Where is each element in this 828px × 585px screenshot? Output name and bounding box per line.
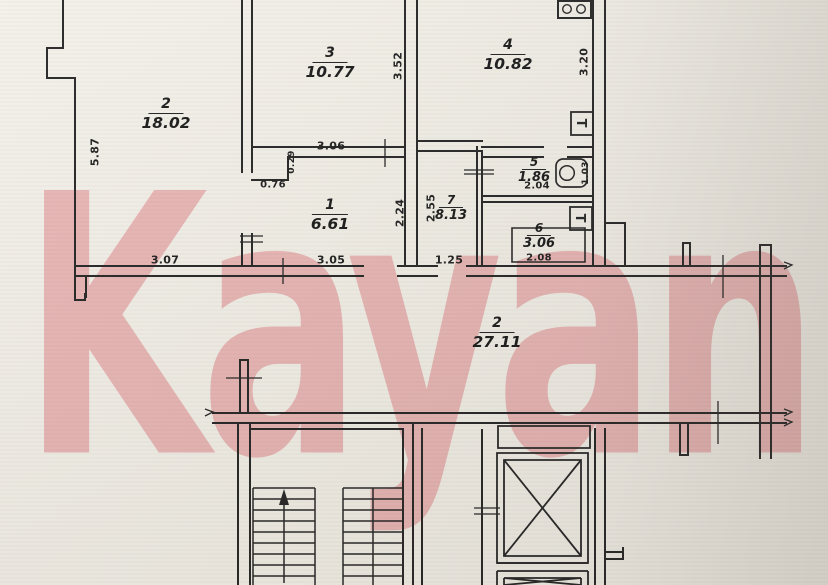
elevators: [497, 426, 590, 585]
dim-label: 3.07: [151, 254, 179, 267]
room-label-3: 3 10.77: [305, 44, 354, 81]
room-area: 10.77: [305, 65, 354, 81]
room-label-1: 1 6.61: [311, 196, 349, 233]
room-area: 8.13: [435, 209, 467, 222]
room-number: 1: [312, 198, 348, 215]
walls: [47, 0, 786, 585]
room-label-4: 4 10.82: [483, 36, 532, 73]
room-label-5: 5 1.86: [518, 153, 550, 184]
room-area: 3.06: [523, 237, 555, 250]
towel-dryer-letter: Т: [572, 214, 587, 223]
elevator-lobby-wall: [595, 429, 623, 585]
wall-room4-bottom: [417, 141, 482, 151]
stairs: [253, 488, 403, 585]
dim-label: 0.29: [287, 150, 297, 173]
room-label-6: 6 3.06: [523, 219, 555, 250]
dim-label: 3.05: [317, 254, 345, 267]
up-arrow-icon: [279, 489, 289, 505]
dim-label: 2.55: [425, 194, 438, 222]
room-number: 5: [522, 156, 546, 170]
stair-door-frame: [240, 360, 248, 413]
room-area: 27.11: [472, 335, 521, 351]
dim-label: 0.76: [260, 180, 286, 191]
toilet-bowl-icon: [560, 166, 575, 181]
stove-burner-icon: [563, 5, 572, 14]
left-outer-wall: [47, 0, 86, 300]
machine-room-box: [498, 426, 590, 448]
room-number: 4: [490, 38, 526, 55]
elevator-shaft-1: [497, 453, 588, 563]
tick-marks: [283, 139, 723, 444]
dim-label: 3.52: [392, 52, 405, 80]
floor-plan-page: Kayan: [0, 0, 828, 585]
wall-stub-lower-right: [680, 423, 688, 455]
wall-room2-room3: [242, 0, 252, 266]
towel-dryer-letter: Т: [573, 119, 588, 128]
room-number: 3: [312, 46, 348, 63]
dim-label: 3.20: [578, 48, 591, 76]
room-number: 2: [148, 97, 184, 114]
corridor-top-wall: [75, 266, 786, 276]
right-main-wall: [593, 0, 605, 266]
wall-stub-upper-right: [683, 243, 690, 266]
wall-room5-room6: [482, 196, 593, 202]
dim-label: 5.87: [89, 138, 102, 166]
elevator-shaft-2: [497, 563, 588, 585]
stairwell-walls: [238, 423, 422, 585]
dim-label: 3.06: [317, 140, 345, 153]
room-label-2-corridor: 2 27.11: [472, 314, 521, 351]
corridor-bottom-wall: [213, 413, 786, 423]
room-area: 10.82: [483, 57, 532, 73]
room-area: 18.02: [141, 116, 190, 132]
floor-plan-drawing: Т Т: [0, 0, 828, 585]
dim-label: 2.08: [526, 253, 552, 264]
wall-room7-room5: [477, 147, 482, 266]
room-number: 6: [527, 222, 551, 236]
room-label-7: 7 8.13: [435, 191, 467, 222]
room-number: 7: [439, 194, 463, 208]
stove-burner-icon: [577, 5, 586, 14]
stair-flight-right: [343, 488, 403, 585]
dim-label: 1.25: [435, 254, 463, 267]
door-hatch-room5: [464, 170, 494, 174]
dim-label: 2.24: [394, 199, 407, 227]
room-label-2-living: 2 18.02: [141, 95, 190, 132]
wall-room3-room4: [405, 0, 417, 266]
room-number: 2: [479, 316, 515, 333]
dim-label: 1.03: [581, 161, 591, 184]
room-area: 6.61: [311, 217, 349, 233]
dim-label: 2.04: [524, 181, 550, 192]
shaft-nook: [605, 223, 625, 266]
